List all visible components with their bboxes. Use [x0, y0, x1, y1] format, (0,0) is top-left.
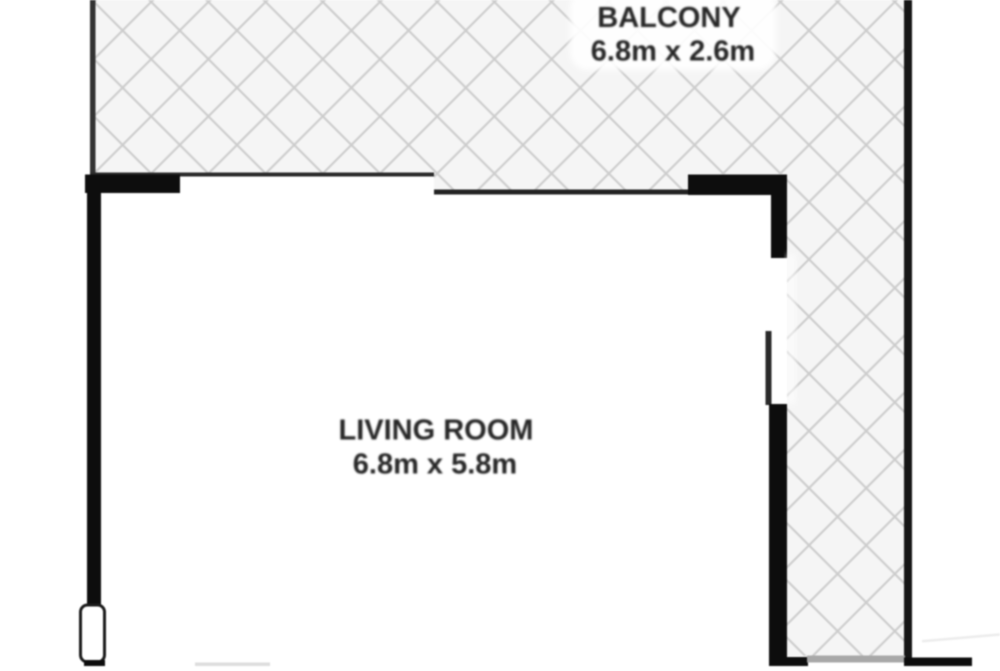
svg-text:BALCONY: BALCONY [597, 2, 740, 34]
svg-text:6.8m x 2.6m: 6.8m x 2.6m [591, 36, 755, 68]
svg-text:6.8m x 5.8m: 6.8m x 5.8m [353, 449, 517, 481]
svg-text:LIVING ROOM: LIVING ROOM [339, 415, 534, 447]
